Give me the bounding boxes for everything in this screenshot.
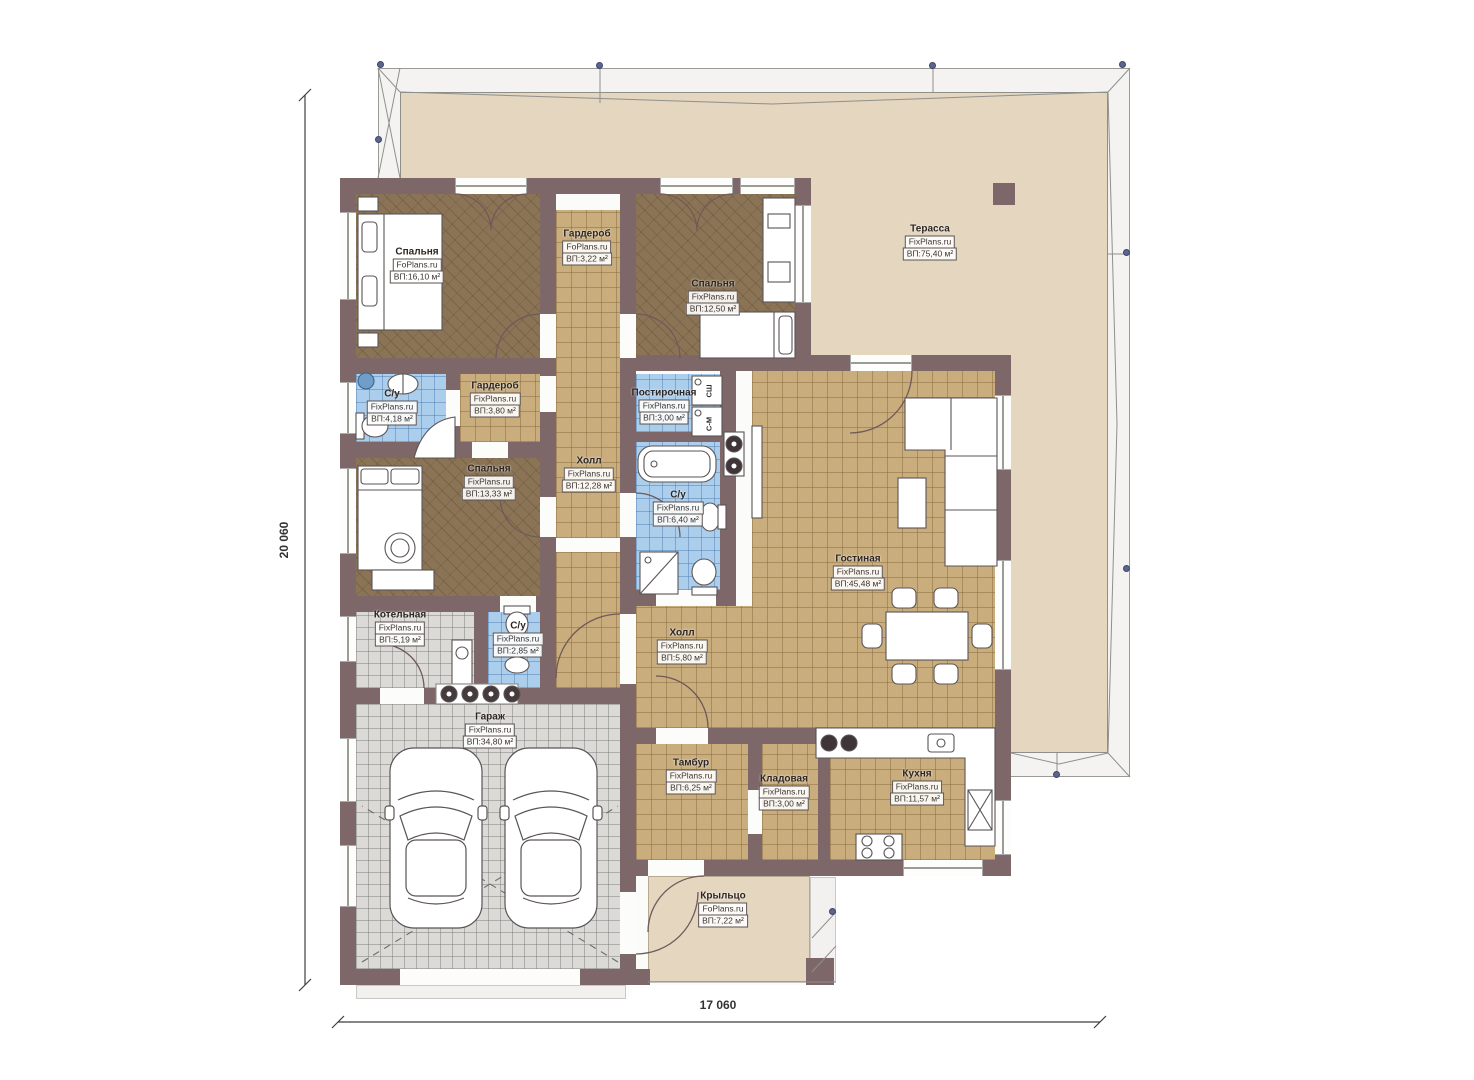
washer-label: С-М xyxy=(705,417,714,431)
room-name: Гараж xyxy=(475,712,505,723)
room-area: ВП:3,80 м² xyxy=(470,405,520,418)
room-floor-bedroom-2 xyxy=(636,194,795,355)
door-opening xyxy=(400,969,580,985)
window xyxy=(455,178,527,194)
room-name: Гардероб xyxy=(563,229,610,240)
room-label-bedroom-3: СпальняFixPlans.ruВП:13,33 м² xyxy=(462,464,516,501)
wall-segment xyxy=(756,728,816,744)
room-label-garage: ГаражFixPlans.ruВП:34,80 м² xyxy=(463,712,517,749)
window xyxy=(740,178,795,194)
room-area: ВП:75,40 м² xyxy=(903,248,957,261)
door-opening xyxy=(620,614,636,684)
wall-segment xyxy=(993,183,1015,205)
door-opening xyxy=(540,314,556,358)
wall-segment xyxy=(474,612,488,688)
window xyxy=(850,355,912,371)
window xyxy=(340,738,356,802)
room-name: Котельная xyxy=(374,610,426,621)
paved-strip xyxy=(356,985,626,999)
room-name: Постирочная xyxy=(632,388,697,399)
room-label-living-room: ГостинаяFixPlans.ruВП:45,48 м² xyxy=(831,554,885,591)
room-area: ВП:11,57 м² xyxy=(890,793,944,806)
door-opening xyxy=(540,497,556,537)
room-label-kitchen: КухняFixPlans.ruВП:11,57 м² xyxy=(890,769,944,806)
room-floor-hall-1 xyxy=(556,310,620,688)
wall-segment xyxy=(720,358,736,606)
window xyxy=(903,860,983,876)
door-opening xyxy=(472,442,508,458)
room-area: ВП:13,33 м² xyxy=(462,488,516,501)
window xyxy=(795,205,811,303)
room-name: С/у xyxy=(510,621,526,632)
room-label-bath-2: С/уFixPlans.ruВП:6,40 м² xyxy=(653,490,704,527)
survey-dot xyxy=(1123,565,1130,572)
door-opening xyxy=(380,688,424,704)
room-area: ВП:2,85 м² xyxy=(493,645,543,658)
room-name: С/у xyxy=(670,490,686,501)
survey-dot xyxy=(1123,249,1130,256)
door-opening xyxy=(556,538,620,552)
room-area: ВП:12,28 м² xyxy=(562,480,616,493)
room-area: ВП:3,00 м² xyxy=(759,798,809,811)
window xyxy=(995,800,1011,855)
room-name: Гардероб xyxy=(471,381,518,392)
room-label-bath-3: С/уFixPlans.ruВП:2,85 м² xyxy=(493,621,544,658)
room-name: Кладовая xyxy=(760,774,808,785)
room-area: ВП:5,19 м² xyxy=(375,634,425,647)
room-name: Холл xyxy=(669,628,694,639)
room-name: Крыльцо xyxy=(700,891,746,902)
room-area: ВП:12,50 м² xyxy=(686,303,740,316)
room-label-terrace: ТерассаFixPlans.ruВП:75,40 м² xyxy=(903,224,957,261)
room-label-bath-1: С/уFixPlans.ruВП:4,18 м² xyxy=(367,389,418,426)
room-label-wardrobe-2: ГардеробFixPlans.ruВП:3,80 м² xyxy=(470,381,521,418)
room-label-vestibule: ТамбурFixPlans.ruВП:6,25 м² xyxy=(666,758,717,795)
room-name: С/у xyxy=(384,389,400,400)
room-area: ВП:6,40 м² xyxy=(653,514,703,527)
door-opening xyxy=(620,892,636,954)
room-name: Спальня xyxy=(691,279,734,290)
room-label-wardrobe-top: ГардеробFoPlans.ruВП:3,22 м² xyxy=(562,229,612,266)
room-label-bedroom-2: СпальняFixPlans.ruВП:12,50 м² xyxy=(686,279,740,316)
door-opening xyxy=(446,390,460,426)
door-opening xyxy=(620,314,636,358)
survey-dot xyxy=(1053,771,1060,778)
room-name: Спальня xyxy=(395,247,438,258)
window xyxy=(340,468,356,554)
room-label-hall-2: ХоллFixPlans.ruВП:5,80 м² xyxy=(657,628,708,665)
room-area: ВП:34,80 м² xyxy=(463,736,517,749)
window xyxy=(995,560,1011,670)
room-label-storage: КладоваяFixPlans.ruВП:3,00 м² xyxy=(759,774,810,811)
room-name: Терасса xyxy=(910,224,950,235)
wall-segment xyxy=(806,958,834,985)
dimension-left: 20 060 xyxy=(277,522,291,559)
room-floor-hall-2 xyxy=(636,606,752,728)
room-floor-bedroom-1 xyxy=(356,194,540,358)
window xyxy=(340,616,356,662)
survey-dot xyxy=(596,62,603,69)
room-floor-living-room xyxy=(752,371,995,728)
wall-segment xyxy=(818,744,830,860)
room-area: ВП:6,25 м² xyxy=(666,782,716,795)
room-label-hall-1: ХоллFixPlans.ruВП:12,28 м² xyxy=(562,456,616,493)
window xyxy=(340,845,356,907)
door-opening xyxy=(656,728,708,744)
room-label-porch: КрыльцоFoPlans.ruВП:7,22 м² xyxy=(698,891,748,928)
window xyxy=(340,382,356,434)
wall-segment xyxy=(340,442,556,458)
room-area: ВП:3,22 м² xyxy=(562,253,612,266)
room-name: Гостиная xyxy=(835,554,880,565)
room-name: Тамбур xyxy=(673,758,709,769)
room-label-bedroom-1: СпальняFoPlans.ruВП:16,10 м² xyxy=(390,247,444,284)
room-area: ВП:5,80 м² xyxy=(657,652,707,665)
door-opening xyxy=(540,376,556,412)
window xyxy=(340,212,356,300)
wall-segment xyxy=(340,358,556,374)
room-label-laundry: ПостирочнаяFixPlans.ruВП:3,00 м² xyxy=(632,388,697,425)
room-area: ВП:4,18 м² xyxy=(367,413,417,426)
room-area: ВП:3,00 м² xyxy=(639,412,689,425)
window xyxy=(660,178,733,194)
door-opening xyxy=(656,590,716,606)
survey-dot xyxy=(377,61,384,68)
dryer-label: СШ xyxy=(705,385,714,398)
wall-segment xyxy=(636,432,720,442)
room-name: Спальня xyxy=(467,464,510,475)
door-opening xyxy=(620,493,636,537)
survey-dot xyxy=(929,62,936,69)
survey-dot xyxy=(1119,61,1126,68)
dimension-bottom: 17 060 xyxy=(700,998,737,1012)
door-opening xyxy=(648,860,704,876)
room-area: ВП:7,22 м² xyxy=(698,915,748,928)
floor-plan-canvas: СШ С-М 20 060 17 060 СпальняFoPlans.ruВП… xyxy=(0,0,1474,1080)
room-area: ВП:45,48 м² xyxy=(831,578,885,591)
room-area: ВП:16,10 м² xyxy=(390,271,444,284)
room-label-boiler-room: КотельнаяFixPlans.ruВП:5,19 м² xyxy=(374,610,426,647)
window xyxy=(995,395,1011,470)
room-name: Кухня xyxy=(902,769,931,780)
door-opening xyxy=(500,596,536,612)
room-name: Холл xyxy=(576,456,601,467)
survey-dot xyxy=(829,908,836,915)
survey-dot xyxy=(375,136,382,143)
